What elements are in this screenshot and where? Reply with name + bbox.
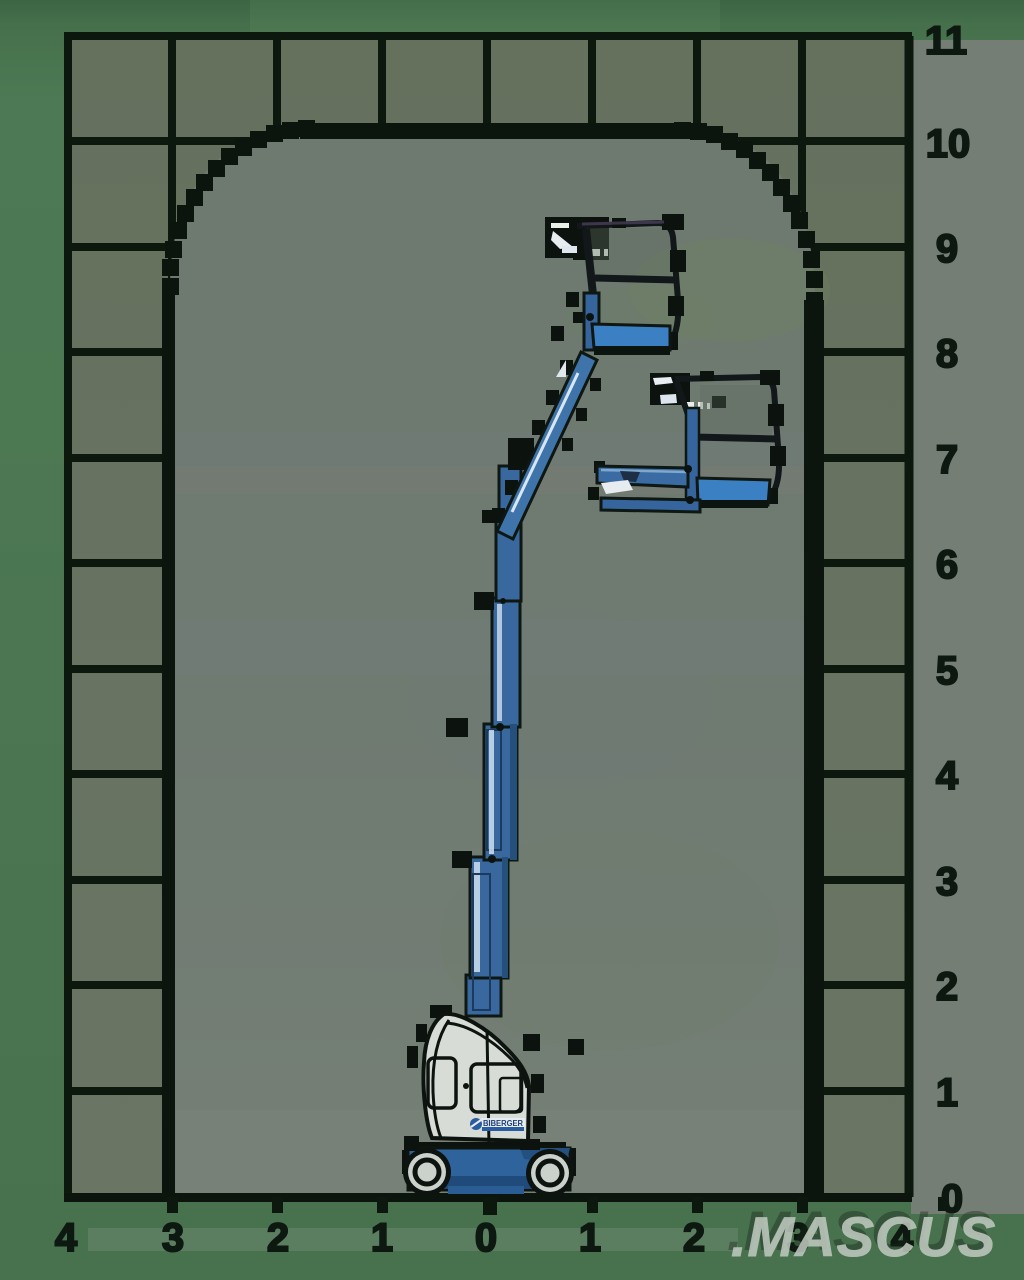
svg-text:1: 1 — [936, 1071, 958, 1115]
svg-text:4: 4 — [936, 754, 959, 798]
svg-text:1: 1 — [579, 1216, 601, 1260]
svg-text:.MASCUS: .MASCUS — [731, 1205, 996, 1268]
svg-text:7: 7 — [936, 438, 958, 482]
svg-text:3: 3 — [936, 860, 958, 904]
svg-text:10: 10 — [926, 122, 971, 166]
svg-text:4: 4 — [55, 1216, 78, 1260]
svg-text:5: 5 — [936, 649, 958, 693]
svg-text:9: 9 — [936, 227, 958, 271]
svg-text:2: 2 — [267, 1216, 289, 1260]
svg-text:1: 1 — [371, 1216, 393, 1260]
svg-text:3: 3 — [162, 1216, 184, 1260]
svg-text:11: 11 — [925, 19, 967, 63]
svg-text:6: 6 — [936, 543, 958, 587]
svg-text:0: 0 — [475, 1216, 497, 1260]
svg-text:BIBERGER: BIBERGER — [483, 1119, 523, 1128]
svg-text:8: 8 — [936, 332, 958, 376]
svg-text:2: 2 — [936, 965, 958, 1009]
svg-text:2: 2 — [683, 1216, 705, 1260]
